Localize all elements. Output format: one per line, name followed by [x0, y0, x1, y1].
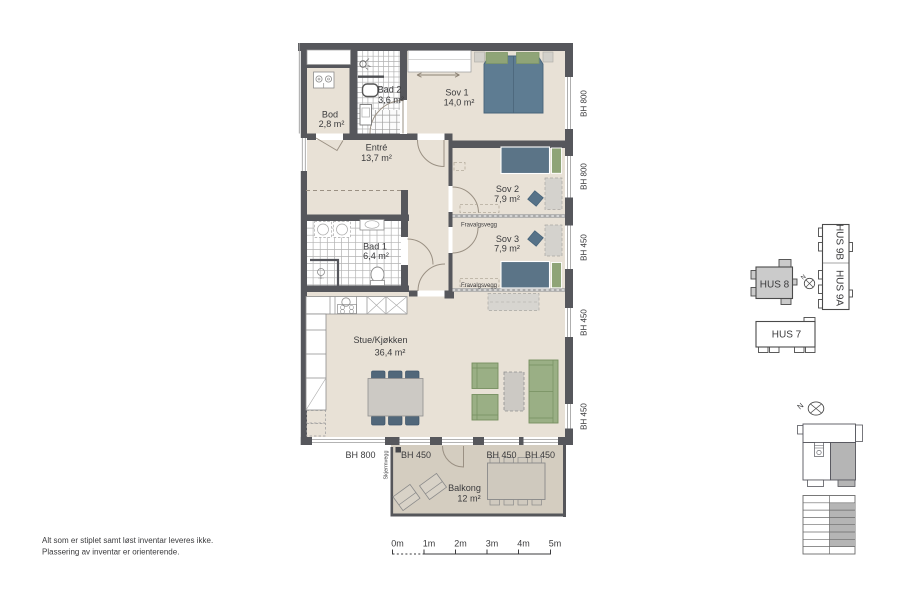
svg-text:HUS 9A: HUS 9A: [834, 270, 845, 306]
svg-text:2m: 2m: [454, 539, 467, 549]
svg-text:Balkong: Balkong: [448, 483, 481, 493]
svg-text:5m: 5m: [549, 539, 562, 549]
svg-text:HUS 7: HUS 7: [772, 330, 802, 341]
svg-text:12 m²: 12 m²: [457, 494, 480, 504]
svg-text:13,7 m²: 13,7 m²: [361, 153, 392, 163]
svg-text:BH 450: BH 450: [486, 450, 516, 460]
svg-text:Fravalgsvegg: Fravalgsvegg: [461, 283, 497, 289]
svg-text:BH 450: BH 450: [525, 450, 555, 460]
svg-text:14,0 m²: 14,0 m²: [444, 98, 475, 108]
svg-text:7,9 m²: 7,9 m²: [494, 194, 520, 204]
svg-text:BH 450: BH 450: [580, 403, 589, 430]
svg-text:HUS 9B: HUS 9B: [834, 224, 845, 260]
svg-text:2,8 m²: 2,8 m²: [319, 119, 345, 129]
svg-text:3,6 m²: 3,6 m²: [378, 95, 404, 105]
svg-text:Bad 2: Bad 2: [378, 85, 402, 95]
svg-text:Entré: Entré: [366, 143, 388, 153]
svg-text:Sov 3: Sov 3: [496, 234, 519, 244]
svg-text:0m: 0m: [391, 539, 404, 549]
svg-text:BH 800: BH 800: [345, 450, 375, 460]
svg-text:BH 450: BH 450: [580, 234, 589, 261]
svg-text:1m: 1m: [423, 539, 436, 549]
svg-text:6,4 m²: 6,4 m²: [363, 251, 389, 261]
svg-text:Sov 1: Sov 1: [445, 88, 468, 98]
svg-text:BH 450: BH 450: [401, 450, 431, 460]
svg-text:Bad 1: Bad 1: [363, 242, 387, 252]
svg-text:Skjermvegg: Skjermvegg: [384, 450, 390, 479]
svg-text:BH 800: BH 800: [580, 90, 589, 117]
svg-text:Stue/Kjøkken: Stue/Kjøkken: [353, 335, 407, 345]
svg-text:BH 800: BH 800: [580, 163, 589, 190]
svg-text:Plassering av inventar er orie: Plassering av inventar er orienterende.: [42, 548, 179, 557]
svg-text:Bod: Bod: [322, 110, 338, 120]
svg-text:HUS 8: HUS 8: [760, 280, 790, 291]
svg-text:Alt som er stiplet samt løst i: Alt som er stiplet samt løst inventar le…: [42, 536, 213, 545]
svg-text:36,4 m²: 36,4 m²: [375, 348, 406, 358]
svg-text:7,9 m²: 7,9 m²: [494, 244, 520, 254]
svg-text:Sov 2: Sov 2: [496, 184, 519, 194]
svg-text:3m: 3m: [486, 539, 499, 549]
svg-text:Fravalgsvegg: Fravalgsvegg: [461, 223, 497, 229]
svg-text:4m: 4m: [517, 539, 530, 549]
svg-text:BH 450: BH 450: [580, 309, 589, 336]
